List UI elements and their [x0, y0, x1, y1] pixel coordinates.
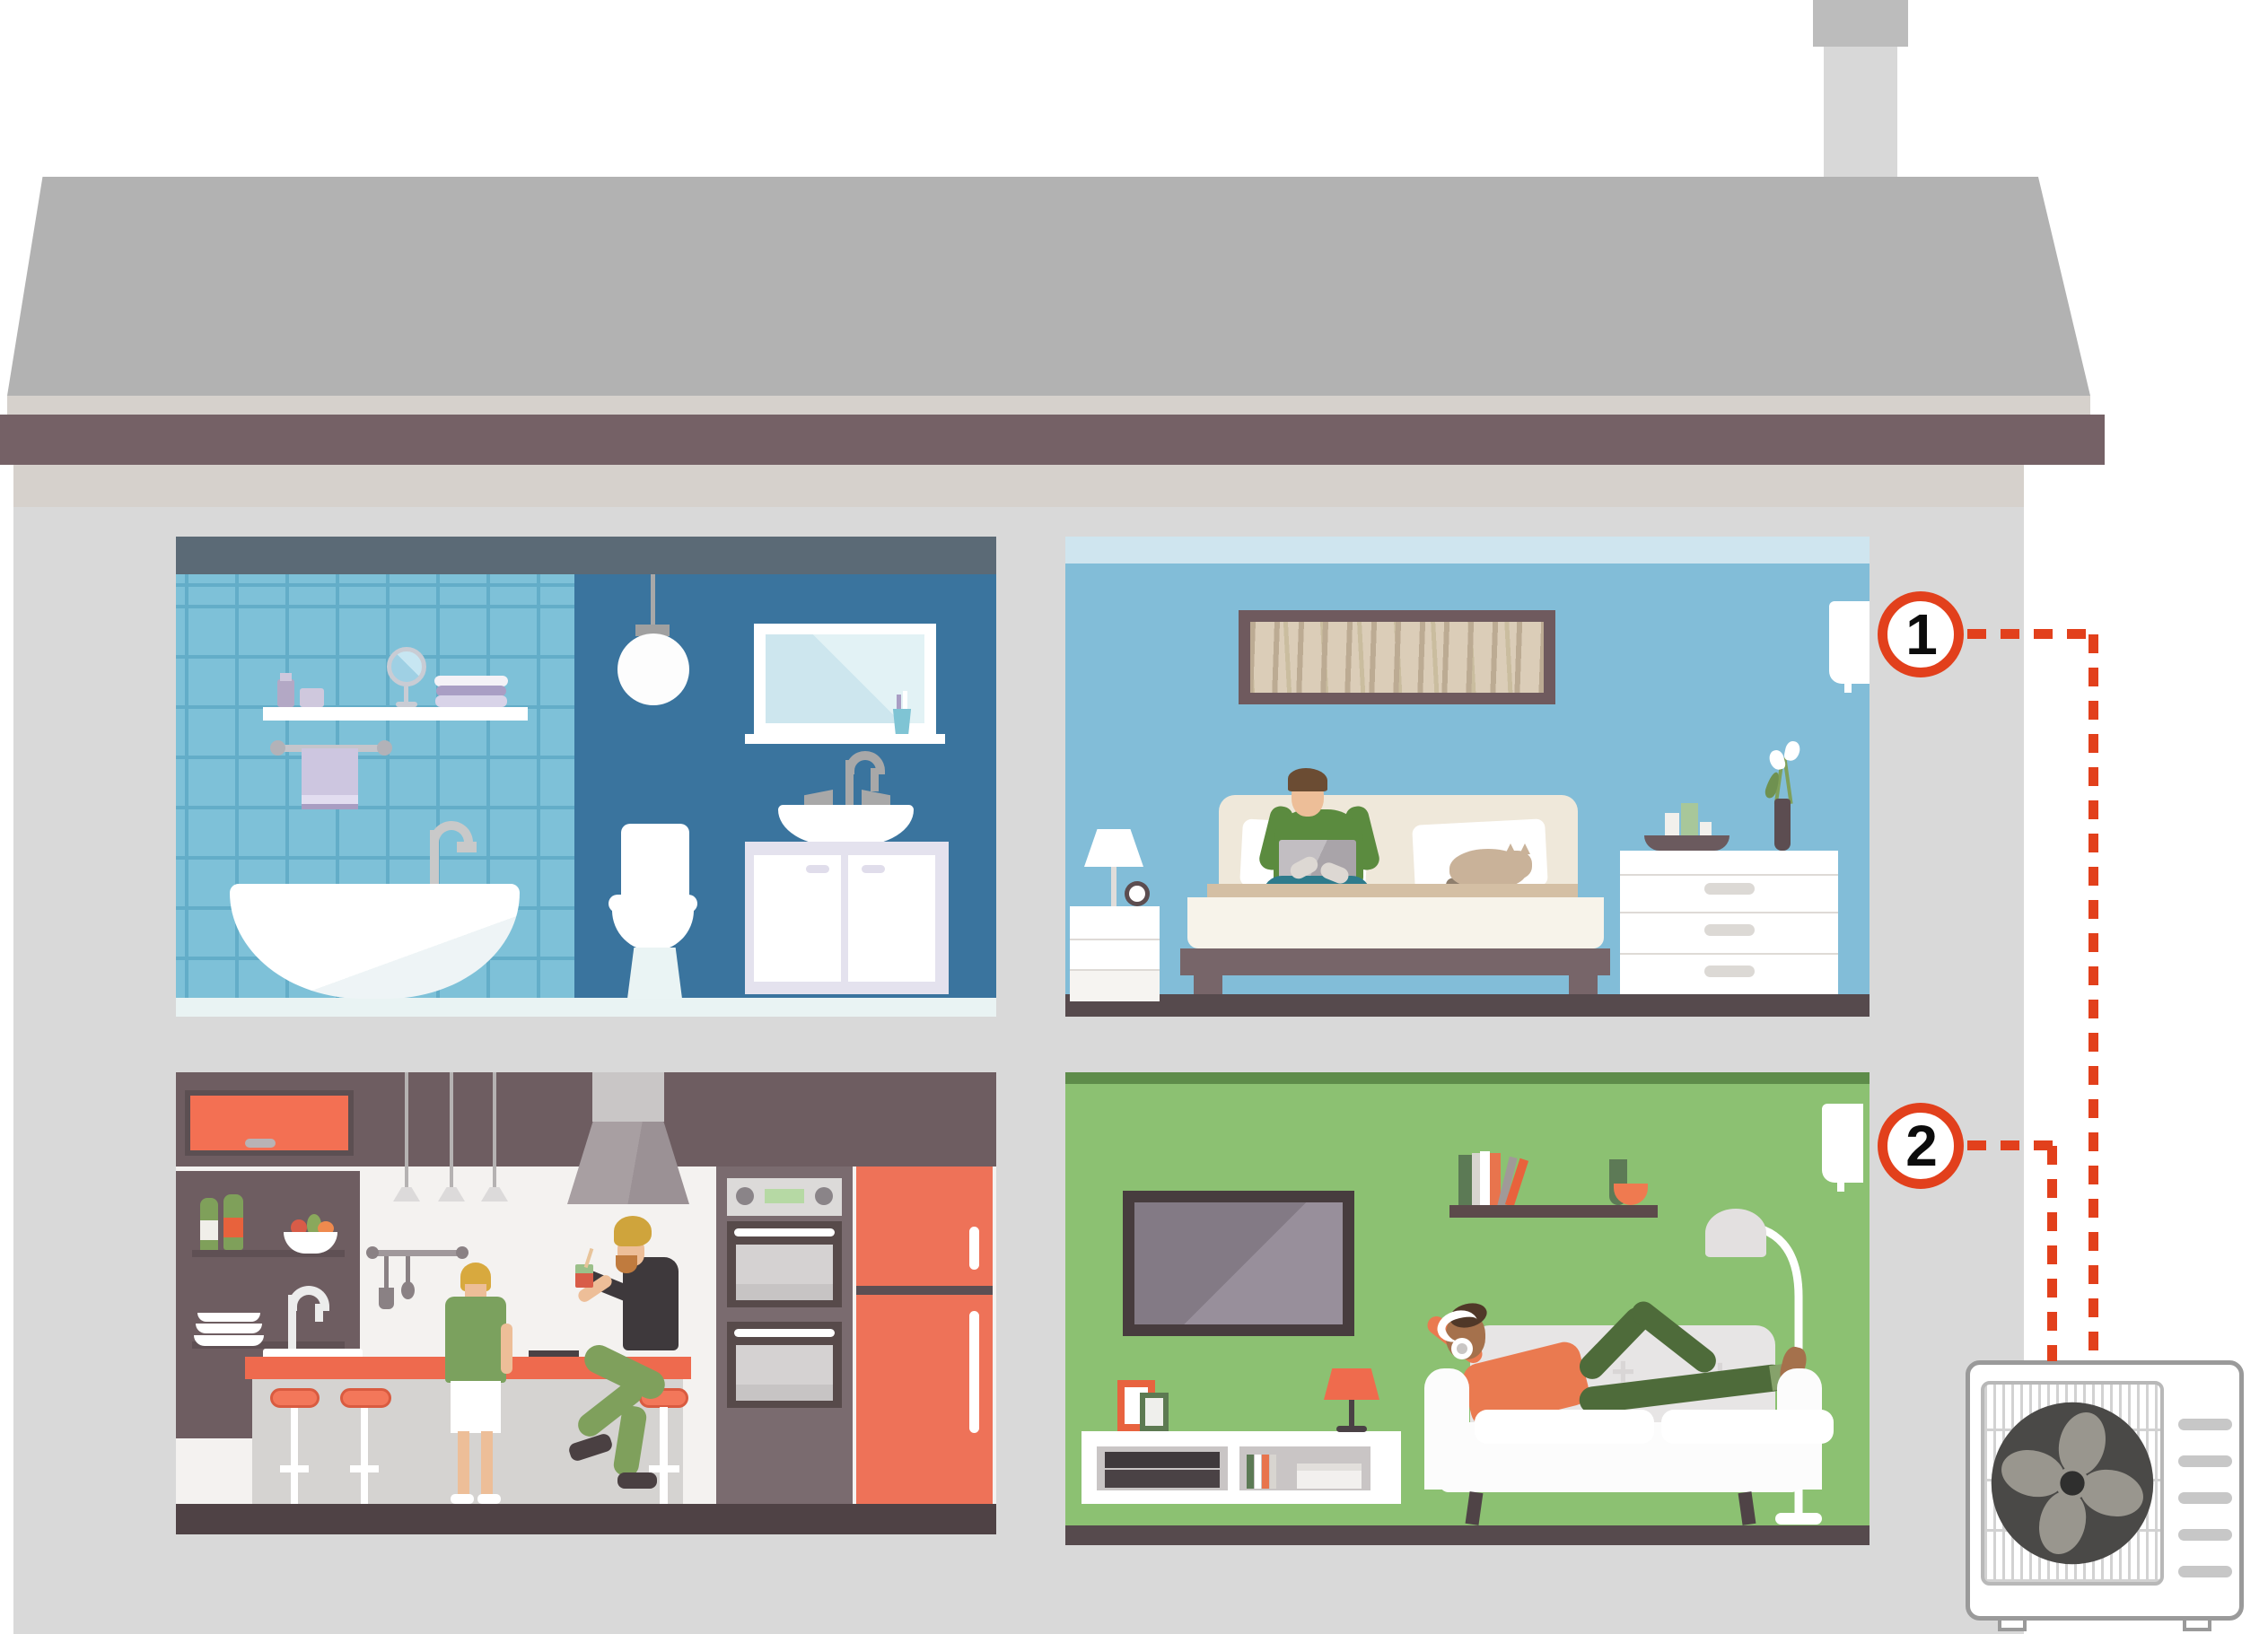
bedroom-person-hair — [1288, 768, 1327, 791]
kitchen-boy-shoe — [451, 1494, 474, 1504]
eaves-strip-lower — [13, 465, 2024, 507]
mirror-shelf — [745, 734, 945, 744]
media-box — [1297, 1464, 1362, 1489]
wall-tv-screen — [1134, 1202, 1343, 1324]
marker-1-label: 1 — [1905, 601, 1936, 668]
refrigerant-line-2-vertical — [2047, 1146, 2057, 1361]
marker-2-label: 2 — [1905, 1113, 1936, 1179]
living-ceiling-band — [1065, 1072, 1870, 1084]
bar-stool-seat — [340, 1388, 391, 1408]
oven-handle — [734, 1329, 835, 1337]
candle — [1681, 803, 1698, 837]
cabinet-handle — [862, 865, 885, 873]
kitchen-boy-shirt — [445, 1297, 506, 1383]
bathroom-wall-shelf — [263, 707, 528, 721]
room-bathroom — [176, 537, 996, 1017]
pendant-cord — [405, 1072, 408, 1189]
kitchen-boy-leg — [458, 1431, 469, 1496]
wine-bottle-label — [200, 1220, 218, 1240]
house-roof — [7, 177, 2090, 396]
pendant-light-globe — [617, 634, 689, 705]
nightstand — [1070, 906, 1160, 1001]
book — [1472, 1153, 1480, 1205]
outdoor-unit — [1966, 1360, 2244, 1621]
refrigerator-handle — [969, 1311, 979, 1433]
dresser-handle — [1704, 924, 1755, 936]
bar-stool-ring — [280, 1465, 309, 1472]
bedroom-ceiling-band — [1065, 537, 1870, 564]
outdoor-unit-slat — [2178, 1529, 2232, 1541]
toilet-tank — [621, 824, 689, 897]
oven-knob — [736, 1187, 754, 1205]
floor-lamp-shade — [1705, 1209, 1766, 1257]
table-lamp-base — [1336, 1426, 1367, 1432]
kitchen-man-beard — [616, 1255, 637, 1273]
vanity-cabinet-door — [848, 855, 935, 982]
outdoor-unit-slat — [2178, 1455, 2232, 1467]
room-kitchen — [176, 1072, 996, 1534]
utensil-rail-cap — [366, 1246, 379, 1259]
indoor-ac-unit-living — [1822, 1104, 1863, 1183]
oven-display — [765, 1189, 804, 1203]
book — [1480, 1151, 1490, 1205]
vessel-sink — [778, 805, 914, 846]
kitchen-faucet-spout — [315, 1304, 323, 1322]
towel-stack — [434, 676, 508, 707]
kitchen-boy-arm — [501, 1324, 512, 1374]
refrigerator-divider — [856, 1286, 993, 1295]
outdoor-unit-slat — [2178, 1419, 2232, 1430]
pendant-cord — [493, 1072, 496, 1189]
headphones-ear-pad — [1457, 1343, 1467, 1354]
toilet-bowl — [612, 908, 694, 951]
book — [1458, 1155, 1472, 1205]
bar-stool-leg — [660, 1407, 668, 1504]
refrigerator-handle — [969, 1227, 979, 1270]
kitchen-boy-shoe — [477, 1494, 501, 1504]
fascia-band — [0, 415, 2105, 465]
bar-stool-ring — [350, 1465, 379, 1472]
calla-lily-flower — [1768, 748, 1787, 771]
illustration-canvas: + + + — [0, 0, 2268, 1634]
cat-head — [1500, 851, 1532, 879]
cream-jar — [300, 688, 324, 707]
bedside-lamp-pole — [1111, 867, 1116, 906]
bed-leg — [1194, 975, 1222, 994]
room-living: + + + — [1065, 1072, 1870, 1545]
outdoor-unit-fan-icon — [1988, 1399, 2157, 1568]
pendant-light-cord — [651, 574, 655, 626]
bar-stool-leg — [361, 1407, 368, 1504]
vanity-cabinet-door — [754, 855, 841, 982]
sofa-cushion — [1475, 1410, 1654, 1444]
floor-lamp-base — [1775, 1513, 1822, 1525]
marker-1: 1 — [1878, 591, 1964, 677]
bar-stool-leg — [291, 1407, 298, 1504]
indoor-ac-unit-bedroom — [1829, 601, 1870, 684]
soda-bottle-label — [223, 1218, 243, 1237]
bar-stool-ring — [649, 1465, 679, 1472]
av-receiver — [1105, 1470, 1220, 1488]
kitchen-man-hair — [614, 1216, 652, 1246]
bed-blanket-edge — [1207, 884, 1578, 898]
cabinet-handle — [806, 865, 829, 873]
oven-door — [736, 1245, 833, 1300]
wall-art — [1239, 610, 1555, 704]
refrigerant-line-2-horizontal — [1967, 1140, 2059, 1150]
sink-faucet-spout — [871, 768, 879, 791]
bar-stool-seat — [270, 1388, 320, 1408]
outdoor-unit-slat — [2178, 1566, 2232, 1577]
kitchen-floor — [176, 1504, 996, 1534]
indoor-ac-unit-bedroom-nub — [1844, 684, 1852, 693]
refrigerant-line-1-horizontal — [1967, 629, 2098, 639]
bathroom-floor — [176, 998, 996, 1017]
pendant-shade — [393, 1187, 420, 1201]
vanity-mirror-base — [396, 702, 417, 707]
mini-book — [1270, 1455, 1276, 1489]
bed-frame — [1180, 948, 1610, 975]
lotion-bottle-cap — [280, 673, 292, 681]
sofa-leg — [1466, 1491, 1484, 1525]
spatula — [384, 1256, 389, 1289]
bathroom-ceiling-band — [176, 537, 996, 574]
dresser-handle — [1704, 883, 1755, 895]
bedside-lamp-shade — [1084, 829, 1143, 867]
kitchen-boy-leg — [481, 1431, 493, 1496]
toothbrush — [903, 691, 907, 711]
outdoor-unit-slat — [2178, 1492, 2232, 1504]
sink-faucet-arc — [845, 751, 885, 774]
sofa-cushion — [1661, 1410, 1834, 1444]
indoor-ac-unit-living-nub — [1837, 1183, 1844, 1192]
living-wall-shelf — [1449, 1205, 1658, 1218]
eaves-strip-upper — [7, 396, 2090, 415]
ladle — [406, 1256, 410, 1283]
plate-stack — [194, 1335, 264, 1346]
kitchen-cabinet-handle — [245, 1139, 276, 1148]
table-lamp-shade — [1324, 1368, 1379, 1400]
mini-book — [1247, 1455, 1254, 1489]
candle — [1665, 813, 1679, 837]
refrigerant-line-1-vertical — [2088, 634, 2098, 1361]
living-floor — [1065, 1525, 1870, 1545]
range-hood-duct — [592, 1072, 664, 1122]
bathtub-faucet-spout — [457, 842, 477, 852]
av-receiver — [1105, 1452, 1220, 1468]
pendant-shade — [438, 1187, 465, 1201]
hanging-towel-fold — [302, 795, 358, 804]
sink-tap-handle — [804, 790, 833, 806]
bedroom-floor — [1065, 994, 1870, 1017]
flower-vase — [1774, 799, 1791, 851]
ladle-bowl — [401, 1281, 415, 1299]
hanging-towel-edge — [302, 804, 358, 809]
picture-frame-green — [1140, 1393, 1169, 1431]
alarm-clock-face — [1129, 886, 1145, 902]
sink-tap-handle — [862, 790, 890, 806]
towel-rail-cap — [270, 740, 285, 756]
pendant-shade — [481, 1187, 508, 1201]
oven-handle — [734, 1228, 835, 1236]
calla-lily-flower — [1783, 740, 1801, 763]
lotion-bottle — [277, 679, 294, 707]
kitchen-boy-shorts — [451, 1381, 501, 1433]
table-lamp-pole — [1349, 1400, 1354, 1428]
towel-rail-cap — [377, 740, 392, 756]
oven-knob — [815, 1187, 833, 1205]
oven-door — [736, 1345, 833, 1401]
chimney-cap — [1813, 0, 1908, 47]
vanity-mirror-stand — [404, 686, 408, 703]
marker-2: 2 — [1878, 1103, 1964, 1189]
plate-stack — [197, 1313, 260, 1322]
room-bedroom — [1065, 537, 1870, 1017]
dresser-handle — [1704, 966, 1755, 977]
mini-book — [1262, 1455, 1269, 1489]
kitchen-man-shoe — [617, 1472, 657, 1489]
plate-stack — [196, 1324, 262, 1333]
vanity-mirror-round — [387, 647, 426, 686]
pendant-cord — [450, 1072, 453, 1189]
wall-art-pattern — [1250, 622, 1544, 693]
bed-mattress — [1187, 897, 1604, 948]
toilet-pedestal — [627, 948, 682, 999]
toothbrush — [897, 695, 901, 711]
utensil-rail-cap — [456, 1246, 468, 1259]
utensil-rail — [372, 1250, 461, 1256]
bed-leg — [1569, 975, 1598, 994]
drink-glass — [575, 1264, 593, 1288]
towel-folded — [435, 695, 507, 707]
candle-plate — [1644, 835, 1729, 851]
spatula-head — [379, 1288, 394, 1309]
mini-book — [1255, 1455, 1261, 1489]
